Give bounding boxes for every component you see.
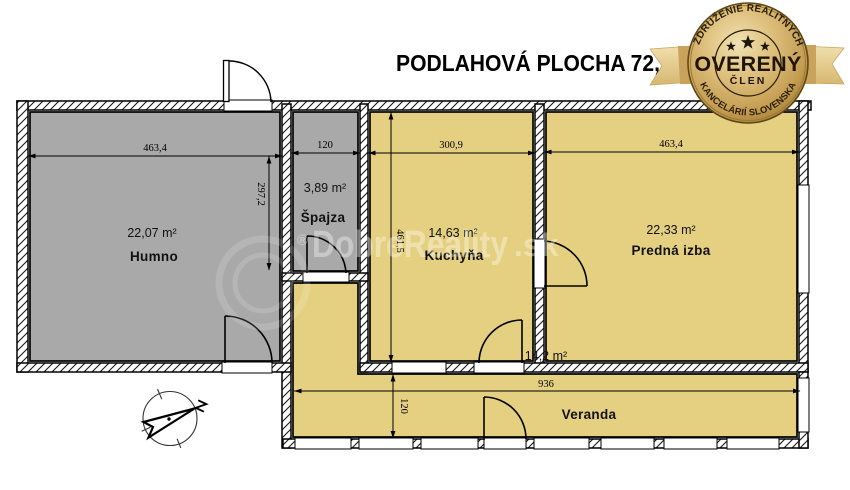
svg-text:Veranda: Veranda [562,407,617,422]
svg-text:120: 120 [317,140,333,151]
svg-text:22,07 m²: 22,07 m² [127,226,176,240]
svg-text:.sk: .sk [514,227,559,263]
svg-text:ČLEN: ČLEN [730,74,767,87]
svg-text:297,2: 297,2 [255,182,266,206]
svg-text:300,9: 300,9 [439,140,463,151]
svg-text:PODLAHOVÁ PLOCHA 72,: PODLAHOVÁ PLOCHA 72, [396,49,660,76]
svg-text:Špajza: Špajza [301,210,346,225]
svg-text:463,4: 463,4 [659,139,683,150]
svg-text:120: 120 [398,398,409,414]
svg-text:3,89 m²: 3,89 m² [304,181,346,195]
svg-text:DobreReality: DobreReality [312,224,508,266]
svg-text:14,2 m²: 14,2 m² [525,349,567,363]
svg-text:®: ® [297,232,308,249]
svg-text:22,33 m²: 22,33 m² [646,223,695,237]
svg-text:Predná izba: Predná izba [631,243,710,258]
svg-text:OVERENÝ: OVERENÝ [694,51,801,76]
svg-text:463,4: 463,4 [143,143,167,154]
svg-text:Humno: Humno [130,249,178,264]
svg-text:936: 936 [538,379,554,390]
